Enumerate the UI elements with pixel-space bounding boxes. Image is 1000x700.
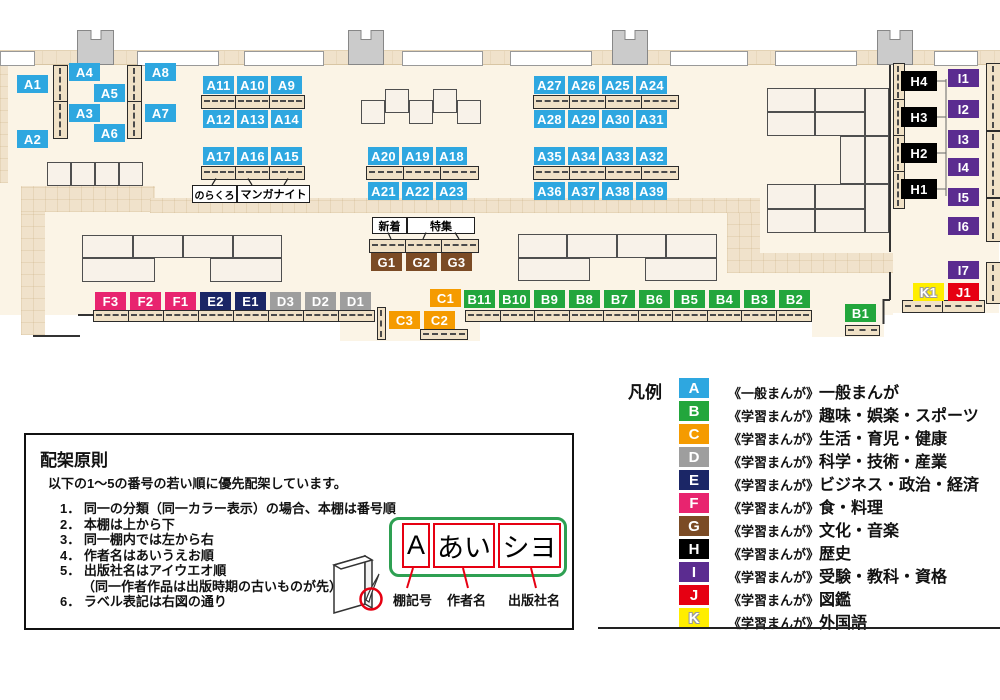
reading-table xyxy=(815,184,865,209)
shelf-dash xyxy=(131,314,162,316)
library-floor-map-page: A1A2A4A3A5A6A8A7A11A10A9A12A13A14A17A16A… xyxy=(0,0,1000,700)
bookshelf xyxy=(533,166,571,180)
shelf-label-A17: A17 xyxy=(203,147,234,165)
legend-row-text: 《学習まんが》外国語 xyxy=(728,609,867,633)
shelf-dash xyxy=(372,244,404,246)
shelf-label-A27: A27 xyxy=(534,76,565,94)
legend-category: ビジネス・政治・経済 xyxy=(819,477,979,494)
bookshelf xyxy=(533,95,571,109)
bookshelf xyxy=(440,166,479,180)
bookshelf xyxy=(500,310,536,322)
principles-intro: 以下の1～5の番号の若い順に優先配架しています。 xyxy=(48,473,347,492)
bookshelf xyxy=(53,65,68,103)
reading-table xyxy=(385,89,409,113)
shelf-dash xyxy=(992,134,994,195)
label-publisher-box: シヨ xyxy=(498,523,561,568)
reading-table xyxy=(815,88,865,112)
label-shelf-code-box: A xyxy=(402,523,430,568)
shelf-label-A10: A10 xyxy=(237,76,268,94)
shelf-dash xyxy=(236,314,267,316)
callout-norakuro: のらくろ xyxy=(192,185,237,203)
shelf-dash xyxy=(133,104,135,136)
legend-category: 一般まんが xyxy=(819,385,899,402)
shelf-dash xyxy=(201,314,232,316)
shelf-label-A31: A31 xyxy=(636,110,667,128)
walkway xyxy=(21,186,155,212)
shelf-label-A9: A9 xyxy=(271,76,302,94)
shelf-label-G1: G1 xyxy=(371,253,402,271)
bookshelf xyxy=(53,101,68,139)
shelf-label-K1: K1 xyxy=(913,283,944,301)
shelf-dash xyxy=(443,171,476,173)
shelf-dash xyxy=(468,314,499,316)
shelf-dash xyxy=(408,244,440,246)
reading-table xyxy=(210,258,282,282)
legend-maker: 《学習まんが》 xyxy=(728,501,819,516)
bookshelf xyxy=(534,310,571,322)
bookshelf xyxy=(127,101,142,139)
legend-category: 外国語 xyxy=(819,615,867,632)
reading-table xyxy=(815,209,865,233)
legend-maker: 《学習まんが》 xyxy=(728,547,819,562)
reading-table xyxy=(617,234,666,258)
bookshelf xyxy=(441,239,479,253)
bookshelf xyxy=(235,95,271,109)
shelf-label-B11: B11 xyxy=(464,290,495,308)
shelf-dash xyxy=(644,100,676,102)
reading-table xyxy=(82,258,155,282)
legend-color-box-F: F xyxy=(679,493,709,513)
bookshelf xyxy=(163,310,200,322)
legend-row-text: 《学習まんが》ビジネス・政治・経済 xyxy=(728,471,979,495)
reading-table xyxy=(518,258,590,281)
shelf-label-I4: I4 xyxy=(948,158,979,176)
bookshelf xyxy=(986,198,1000,242)
shelf-label-A33: A33 xyxy=(602,147,633,165)
shelf-label-B2: B2 xyxy=(779,290,810,308)
shelf-dash xyxy=(59,68,61,100)
legend-color-box-D: D xyxy=(679,447,709,467)
shelf-dash xyxy=(945,305,982,307)
shelf-dash xyxy=(166,314,197,316)
bookshelf xyxy=(233,310,270,322)
legend-category: 受験・教科・資格 xyxy=(819,569,947,586)
shelf-label-A4: A4 xyxy=(69,63,100,81)
bookshelf xyxy=(776,310,812,322)
shelf-label-G2: G2 xyxy=(406,253,437,271)
shelf-label-C1: C1 xyxy=(430,289,461,307)
bookshelf xyxy=(465,310,502,322)
shelf-label-A18: A18 xyxy=(436,147,467,165)
shelf-dash xyxy=(848,329,877,331)
pillar-notch xyxy=(890,30,901,40)
legend-row-text: 《学習まんが》文化・音楽 xyxy=(728,517,899,541)
shelf-label-C2: C2 xyxy=(424,311,455,329)
shelf-label-I1: I1 xyxy=(948,69,979,87)
shelf-label-A29: A29 xyxy=(568,110,599,128)
shelf-label-B4: B4 xyxy=(709,290,740,308)
shelf-label-A20: A20 xyxy=(368,147,399,165)
reading-table xyxy=(82,235,133,258)
reading-table xyxy=(433,89,457,113)
legend-color-box-K: K xyxy=(679,608,709,628)
legend-row-text: 《一般まんが》一般まんが xyxy=(728,379,899,403)
shelf-label-B10: B10 xyxy=(499,290,530,308)
shelf-dash xyxy=(897,66,899,98)
shelf-label-H1: H1 xyxy=(901,179,937,199)
bookshelf xyxy=(569,95,607,109)
bookshelf xyxy=(127,65,142,103)
shelf-label-A11: A11 xyxy=(203,76,234,94)
shelf-label-A25: A25 xyxy=(602,76,633,94)
shelf-dash xyxy=(271,314,302,316)
bookshelf xyxy=(741,310,778,322)
bookshelf xyxy=(303,310,340,322)
shelf-dash xyxy=(992,265,994,301)
shelf-label-D3: D3 xyxy=(270,292,301,310)
pillar xyxy=(877,30,913,65)
shelf-dash xyxy=(96,314,127,316)
bookshelf xyxy=(672,310,709,322)
reading-table xyxy=(767,88,815,112)
legend-category: 食・料理 xyxy=(819,500,883,517)
shelf-label-A38: A38 xyxy=(602,182,633,200)
shelf-dash xyxy=(238,100,268,102)
label-author-box: あい xyxy=(433,523,495,568)
shelf-label-A39: A39 xyxy=(636,182,667,200)
legend-category: 図鑑 xyxy=(819,592,851,609)
shelf-label-A35: A35 xyxy=(534,147,565,165)
window xyxy=(670,51,748,66)
legend-row-text: 《学習まんが》生活・育児・健康 xyxy=(728,425,947,449)
bookshelf xyxy=(198,310,235,322)
walkway xyxy=(0,63,8,183)
pillar xyxy=(612,30,648,65)
window xyxy=(934,51,978,66)
shelf-label-D1: D1 xyxy=(340,292,371,310)
shelf-label-A24: A24 xyxy=(636,76,667,94)
shelf-label-A28: A28 xyxy=(534,110,565,128)
reading-table xyxy=(47,162,71,186)
shelf-dash xyxy=(423,333,465,335)
shelf-dash xyxy=(204,171,234,173)
shelf-dash xyxy=(306,314,337,316)
shelf-dash xyxy=(675,314,706,316)
reading-table xyxy=(71,162,95,186)
shelf-dash xyxy=(992,66,994,128)
bookshelf xyxy=(902,300,944,313)
bookshelf xyxy=(201,95,237,109)
shelf-label-J1: J1 xyxy=(948,283,979,301)
shelf-dash xyxy=(779,314,809,316)
legend-row-text: 《学習まんが》歴史 xyxy=(728,540,851,564)
shelf-label-E1: E1 xyxy=(235,292,266,310)
reading-table xyxy=(518,234,567,258)
window xyxy=(0,51,35,66)
legend-maker: 《一般まんが》 xyxy=(728,386,819,401)
shelf-label-A23: A23 xyxy=(436,182,467,200)
shelf-label-A6: A6 xyxy=(94,124,125,142)
legend-row-text: 《学習まんが》科学・技術・産業 xyxy=(728,448,947,472)
shelf-dash xyxy=(572,171,604,173)
legend-title: 凡例 xyxy=(628,378,662,403)
legend-maker: 《学習まんが》 xyxy=(728,478,819,493)
author-caption: 作者名 xyxy=(447,590,486,609)
shelf-dash xyxy=(897,138,899,170)
shelf-dash xyxy=(537,314,568,316)
shelf-label-A22: A22 xyxy=(402,182,433,200)
bookshelf xyxy=(369,239,407,253)
shelf-label-A2: A2 xyxy=(17,130,48,148)
legend-color-box-A: A xyxy=(679,378,709,398)
reading-table xyxy=(767,184,815,209)
bookshelf xyxy=(603,310,640,322)
legend-row-text: 《学習まんが》図鑑 xyxy=(728,586,851,610)
reading-table xyxy=(865,88,889,136)
shelf-label-H4: H4 xyxy=(901,71,937,91)
shelf-label-I7: I7 xyxy=(948,261,979,279)
shelf-dash xyxy=(238,171,268,173)
shelf-label-I3: I3 xyxy=(948,130,979,148)
bookshelf xyxy=(338,310,375,322)
shelf-label-A19: A19 xyxy=(402,147,433,165)
callout-feature: 特集 xyxy=(407,217,475,234)
legend-color-box-I: I xyxy=(679,562,709,582)
shelf-dash xyxy=(606,314,637,316)
legend-row-text: 《学習まんが》食・料理 xyxy=(728,494,883,518)
pillar-notch xyxy=(90,30,101,40)
shelf-dash xyxy=(59,104,61,136)
legend-color-box-H: H xyxy=(679,539,709,559)
bookshelf xyxy=(942,300,985,313)
shelf-label-E2: E2 xyxy=(200,292,231,310)
bookshelf xyxy=(366,166,405,180)
shelf-label-A21: A21 xyxy=(368,182,399,200)
shelf-label-A12: A12 xyxy=(203,110,234,128)
shelf-label-F1: F1 xyxy=(165,292,196,310)
shelf-dash xyxy=(406,171,439,173)
bookshelf xyxy=(569,310,605,322)
shelf-label-A3: A3 xyxy=(69,104,100,122)
reading-table xyxy=(666,234,717,258)
shelf-dash xyxy=(897,102,899,134)
bookshelf xyxy=(605,95,643,109)
shelf-label-B6: B6 xyxy=(639,290,670,308)
shelf-label-I2: I2 xyxy=(948,100,979,118)
shelf-label-A26: A26 xyxy=(568,76,599,94)
legend-row-text: 《学習まんが》受験・教科・資格 xyxy=(728,563,947,587)
shelf-label-A13: A13 xyxy=(237,110,268,128)
reading-table xyxy=(865,184,889,233)
reading-table xyxy=(183,235,233,258)
legend-maker: 《学習まんが》 xyxy=(728,455,819,470)
callout-new-arrivals: 新着 xyxy=(372,217,407,234)
bookshelf xyxy=(405,239,443,253)
legend-row-text: 《学習まんが》趣味・娯楽・スポーツ xyxy=(728,402,979,426)
shelf-dash xyxy=(380,310,382,337)
legend-color-box-J: J xyxy=(679,585,709,605)
window xyxy=(402,51,483,66)
bookshelf xyxy=(269,95,305,109)
shelf-label-G3: G3 xyxy=(441,253,472,271)
shelf-dash xyxy=(444,244,476,246)
shelf-label-F2: F2 xyxy=(130,292,161,310)
shelf-dash xyxy=(644,171,676,173)
pillar-notch xyxy=(361,30,372,40)
shelf-dash xyxy=(133,68,135,100)
bookshelf xyxy=(641,95,679,109)
publisher-caption: 出版社名 xyxy=(508,590,560,609)
shelf-dash xyxy=(710,314,740,316)
legend-color-box-C: C xyxy=(679,424,709,444)
legend-category: 科学・技術・産業 xyxy=(819,454,947,471)
reading-table xyxy=(233,235,282,258)
shelf-label-A16: A16 xyxy=(237,147,268,165)
shelf-dash xyxy=(744,314,775,316)
shelf-label-I6: I6 xyxy=(948,217,979,235)
legend-color-box-G: G xyxy=(679,516,709,536)
shelf-label-A30: A30 xyxy=(602,110,633,128)
bookshelf xyxy=(268,310,305,322)
bookshelf xyxy=(377,307,386,340)
shelf-dash xyxy=(272,171,302,173)
shelf-label-A36: A36 xyxy=(534,182,565,200)
principles-title: 配架原則 xyxy=(40,446,108,471)
reading-table xyxy=(95,162,119,186)
shelf-label-B3: B3 xyxy=(744,290,775,308)
shelf-dash xyxy=(341,314,372,316)
bookshelf xyxy=(235,166,271,180)
shelf-label-A5: A5 xyxy=(94,84,125,102)
bookshelf xyxy=(269,166,305,180)
shelf-label-A15: A15 xyxy=(271,147,302,165)
principles-item: 6． ラベル表記は右図の通り xyxy=(60,591,227,610)
bookshelf xyxy=(986,262,1000,304)
reading-table xyxy=(133,235,183,258)
legend-maker: 《学習まんが》 xyxy=(728,432,819,447)
pillar xyxy=(77,30,114,65)
shelf-dash xyxy=(608,171,640,173)
bookshelf xyxy=(93,310,130,322)
reading-table xyxy=(567,234,617,258)
reading-table xyxy=(767,112,815,136)
shelf-dash xyxy=(608,100,640,102)
callout-manga-night: マンガナイト xyxy=(237,185,310,203)
bookshelf xyxy=(569,166,607,180)
shelf-label-I5: I5 xyxy=(948,188,979,206)
shelf-dash xyxy=(572,100,604,102)
shelf-label-B5: B5 xyxy=(674,290,705,308)
shelf-label-B1: B1 xyxy=(845,304,876,322)
shelf-label-B8: B8 xyxy=(569,290,600,308)
shelf-label-C3: C3 xyxy=(389,311,420,329)
bookshelf xyxy=(845,325,880,336)
bookshelf xyxy=(986,63,1000,131)
bookshelf xyxy=(638,310,674,322)
walkway xyxy=(727,253,893,273)
shelf-dash xyxy=(536,100,568,102)
reading-table xyxy=(815,112,865,136)
shelf-label-A37: A37 xyxy=(568,182,599,200)
legend-maker: 《学習まんが》 xyxy=(728,524,819,539)
shelf-dash xyxy=(572,314,602,316)
legend-category: 歴史 xyxy=(819,546,851,563)
shelf-label-F3: F3 xyxy=(95,292,126,310)
shelf-label-H3: H3 xyxy=(901,107,937,127)
shelf-dash xyxy=(369,171,402,173)
legend-category: 文化・音楽 xyxy=(819,523,899,540)
shelf-label-A32: A32 xyxy=(636,147,667,165)
reading-table xyxy=(119,162,143,186)
shelf-label-B9: B9 xyxy=(534,290,565,308)
bookshelf xyxy=(986,131,1000,198)
bookshelf xyxy=(403,166,442,180)
shelf-label-A14: A14 xyxy=(271,110,302,128)
bookshelf xyxy=(605,166,643,180)
shelf-code-caption: 棚記号 xyxy=(393,590,432,609)
legend-category: 生活・育児・健康 xyxy=(819,431,947,448)
shelf-dash xyxy=(905,305,941,307)
reading-table xyxy=(767,209,815,233)
legend-color-box-B: B xyxy=(679,401,709,421)
legend-maker: 《学習まんが》 xyxy=(728,409,819,424)
shelf-dash xyxy=(992,201,994,239)
reading-table xyxy=(645,258,717,281)
pillar xyxy=(348,30,384,65)
window xyxy=(244,51,324,66)
bookshelf xyxy=(128,310,165,322)
reading-table xyxy=(840,136,865,184)
shelf-label-A7: A7 xyxy=(145,104,176,122)
bookshelf xyxy=(420,329,468,340)
bookshelf xyxy=(201,166,237,180)
shelf-dash xyxy=(536,171,568,173)
bookshelf xyxy=(707,310,743,322)
shelf-label-A34: A34 xyxy=(568,147,599,165)
reading-table xyxy=(457,100,481,124)
shelf-label-D2: D2 xyxy=(305,292,336,310)
shelf-label-A8: A8 xyxy=(145,63,176,81)
shelf-dash xyxy=(204,100,234,102)
window xyxy=(775,51,857,66)
reading-table xyxy=(865,136,889,184)
legend-color-box-E: E xyxy=(679,470,709,490)
shelf-label-A1: A1 xyxy=(17,75,48,93)
shelf-label-B7: B7 xyxy=(604,290,635,308)
legend-maker: 《学習まんが》 xyxy=(728,570,819,585)
shelf-dash xyxy=(272,100,302,102)
bookshelf xyxy=(641,166,679,180)
window xyxy=(510,51,592,66)
legend-category: 趣味・娯楽・スポーツ xyxy=(819,408,979,425)
reading-table xyxy=(361,100,385,124)
shelf-dash xyxy=(641,314,671,316)
pillar-notch xyxy=(625,30,636,40)
shelf-dash xyxy=(897,174,899,206)
divider-line xyxy=(598,627,1000,629)
reading-table xyxy=(409,100,433,124)
shelf-label-H2: H2 xyxy=(901,143,937,163)
shelf-dash xyxy=(503,314,533,316)
legend-maker: 《学習まんが》 xyxy=(728,593,819,608)
